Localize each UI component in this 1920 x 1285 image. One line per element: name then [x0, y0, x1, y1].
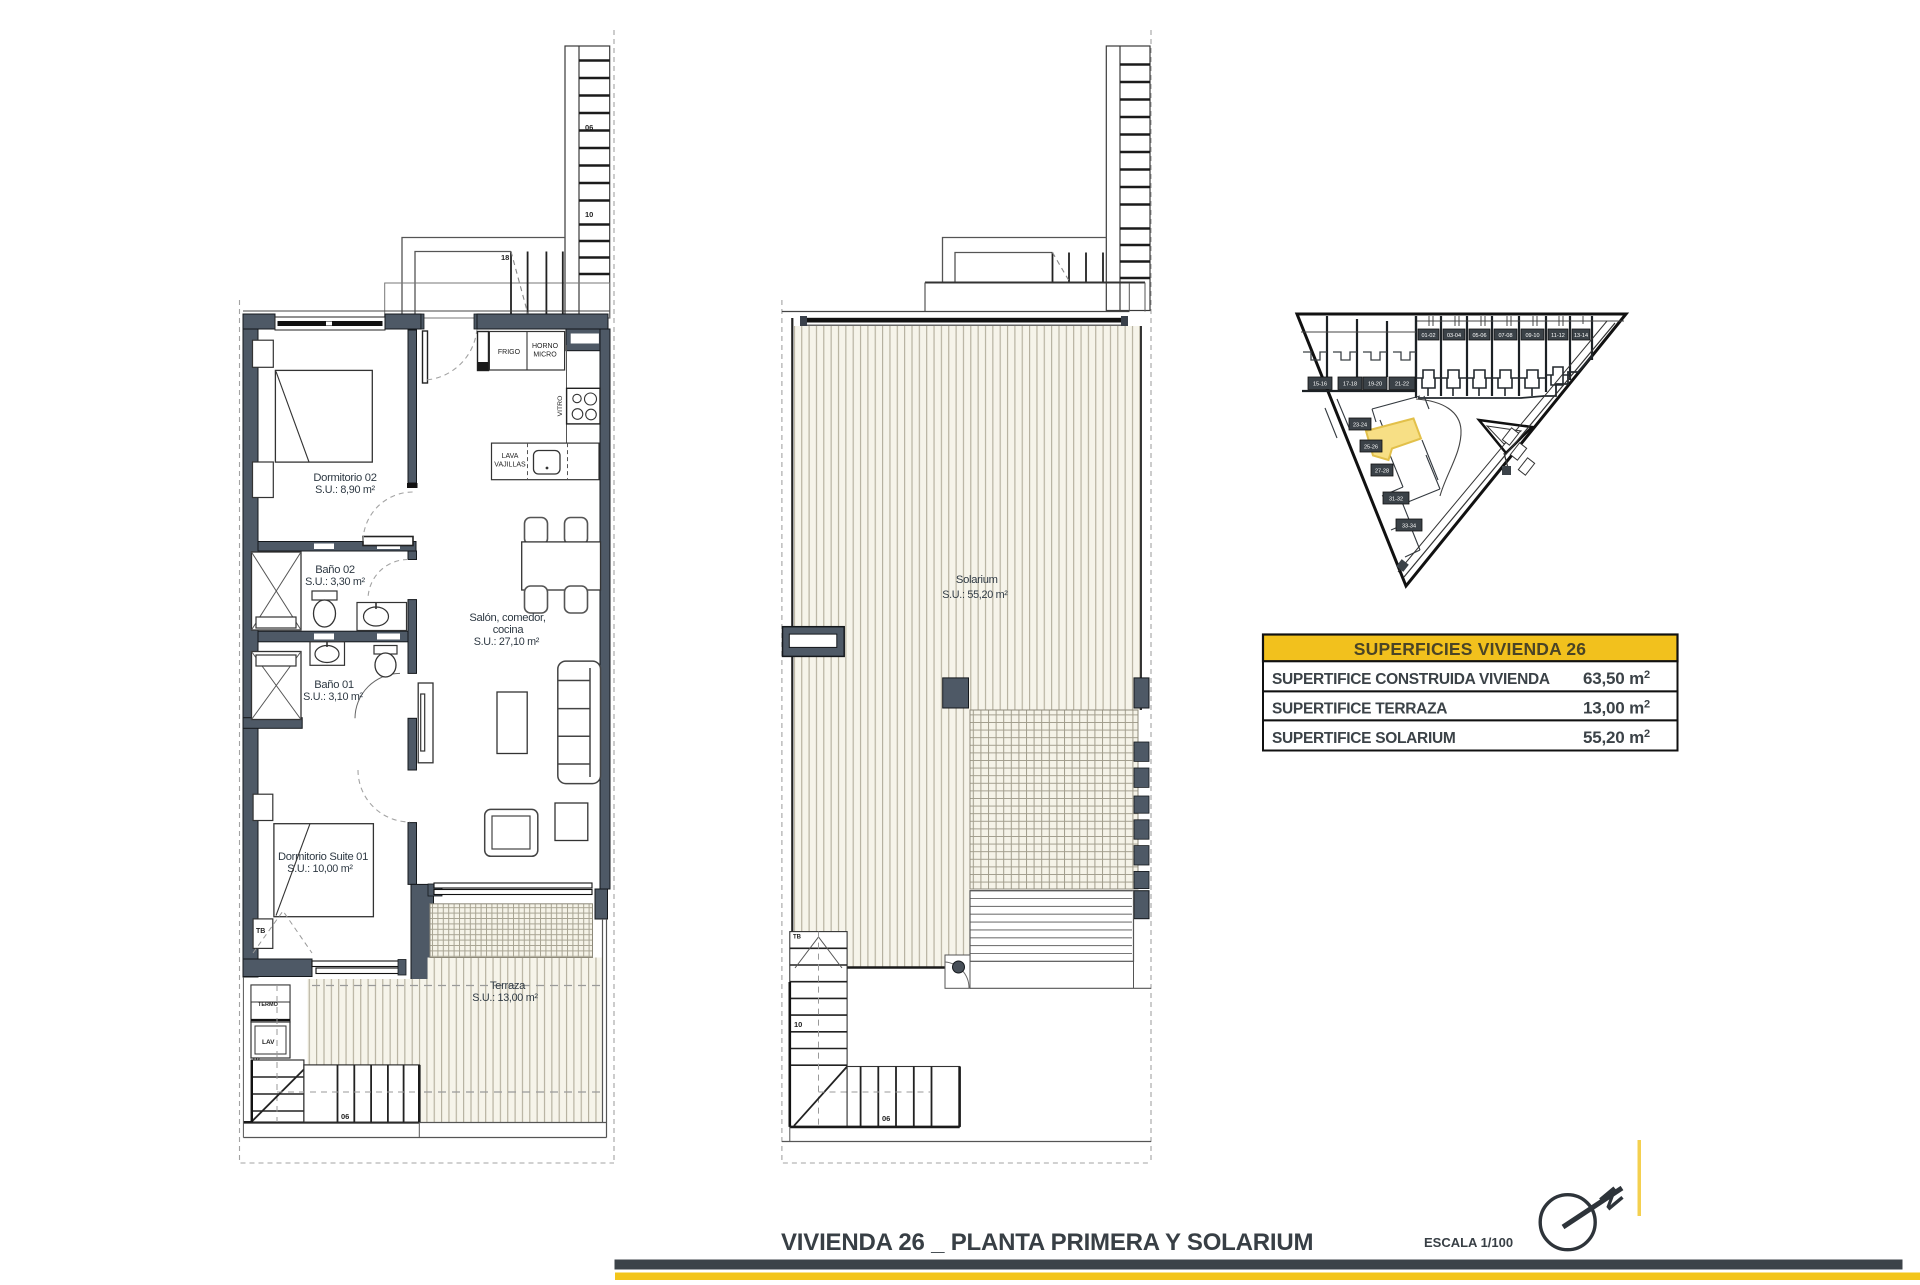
svg-text:S.U.: 3,30 m²: S.U.: 3,30 m²: [305, 576, 365, 588]
svg-text:19-20: 19-20: [1368, 382, 1382, 388]
svg-text:09-10: 09-10: [1525, 333, 1539, 339]
svg-text:13,00 m2: 13,00 m2: [1583, 699, 1650, 718]
svg-text:13-14: 13-14: [1574, 333, 1588, 339]
svg-text:33-34: 33-34: [1402, 524, 1416, 530]
svg-text:SUPERTIFICE TERRAZA: SUPERTIFICE TERRAZA: [1272, 701, 1447, 718]
svg-text:Solarium: Solarium: [956, 574, 998, 586]
svg-text:Terraza: Terraza: [490, 980, 526, 992]
svg-text:S.U.: 8,90 m²: S.U.: 8,90 m²: [315, 484, 375, 496]
svg-text:07-08: 07-08: [1498, 333, 1512, 339]
svg-text:S.U.: 10,00 m²: S.U.: 10,00 m²: [287, 863, 353, 875]
svg-text:LAVA: LAVA: [502, 453, 519, 460]
svg-text:S.U.: 27,10 m²: S.U.: 27,10 m²: [474, 636, 540, 648]
svg-text:LAV: LAV: [262, 1039, 275, 1046]
svg-text:63,50 m2: 63,50 m2: [1583, 669, 1650, 688]
svg-text:cocina: cocina: [493, 624, 525, 636]
svg-text:25-26: 25-26: [1364, 445, 1378, 451]
svg-text:VAJILLAS: VAJILLAS: [494, 462, 526, 469]
svg-text:TB: TB: [793, 935, 802, 941]
svg-text:Salón, comedor,: Salón, comedor,: [469, 612, 546, 624]
svg-text:TB: TB: [256, 928, 265, 935]
svg-text:10: 10: [585, 210, 593, 219]
svg-text:HORNO: HORNO: [532, 343, 559, 350]
svg-text:18: 18: [501, 253, 509, 262]
svg-text:ESCALA 1/100: ESCALA 1/100: [1424, 1235, 1513, 1250]
svg-text:31-32: 31-32: [1389, 497, 1403, 503]
svg-text:27-28: 27-28: [1375, 469, 1389, 475]
svg-text:23-24: 23-24: [1353, 423, 1367, 429]
svg-text:17-18: 17-18: [1343, 382, 1357, 388]
svg-text:11-12: 11-12: [1551, 333, 1565, 339]
svg-text:15-16: 15-16: [1313, 382, 1327, 388]
svg-text:Baño 01: Baño 01: [314, 679, 354, 691]
svg-text:VIVIENDA 26 _ PLANTA PRIMERA Y: VIVIENDA 26 _ PLANTA PRIMERA Y SOLARIUM: [781, 1229, 1313, 1256]
svg-text:05-06: 05-06: [1472, 333, 1486, 339]
svg-text:Dormitorio 02: Dormitorio 02: [313, 472, 376, 484]
svg-text:S.U.: 55,20 m²: S.U.: 55,20 m²: [942, 589, 1008, 601]
svg-text:FRIGO: FRIGO: [498, 349, 521, 356]
svg-text:Baño 02: Baño 02: [315, 564, 355, 576]
svg-text:03-04: 03-04: [1447, 333, 1461, 339]
svg-text:SUPERTIFICE SOLARIUM: SUPERTIFICE SOLARIUM: [1272, 730, 1455, 747]
svg-text:06: 06: [341, 1112, 349, 1121]
svg-text:Dormitorio Suite 01: Dormitorio Suite 01: [278, 851, 368, 863]
svg-text:21-22: 21-22: [1395, 382, 1409, 388]
svg-text:MICRO: MICRO: [533, 352, 557, 359]
svg-text:S.U.: 3,10 m²: S.U.: 3,10 m²: [303, 691, 363, 703]
svg-text:06: 06: [585, 123, 593, 132]
svg-text:10: 10: [794, 1020, 802, 1029]
svg-text:01-02: 01-02: [1421, 333, 1435, 339]
svg-text:TERMO: TERMO: [258, 1002, 279, 1008]
svg-text:VITRO: VITRO: [557, 396, 564, 417]
svg-text:06: 06: [882, 1114, 890, 1123]
svg-text:S.U.: 13,00 m²: S.U.: 13,00 m²: [472, 992, 538, 1004]
svg-text:SUPERTIFICE CONSTRUIDA VIVIEND: SUPERTIFICE CONSTRUIDA VIVIENDA: [1272, 671, 1550, 688]
svg-text:55,20 m2: 55,20 m2: [1583, 728, 1650, 747]
svg-text:SUPERFICIES VIVIENDA 26: SUPERFICIES VIVIENDA 26: [1354, 639, 1587, 659]
